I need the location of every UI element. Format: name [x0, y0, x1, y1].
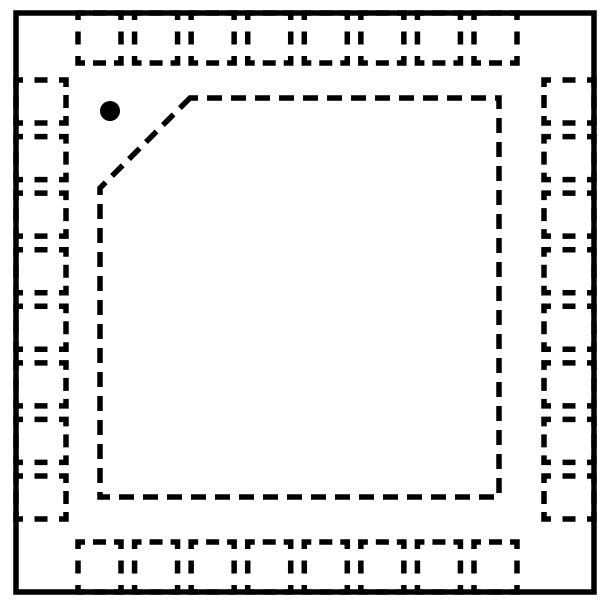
pin1-indicator-dot [100, 101, 120, 121]
diagram-canvas [0, 0, 600, 600]
qfn-package-outline-diagram [0, 0, 600, 600]
